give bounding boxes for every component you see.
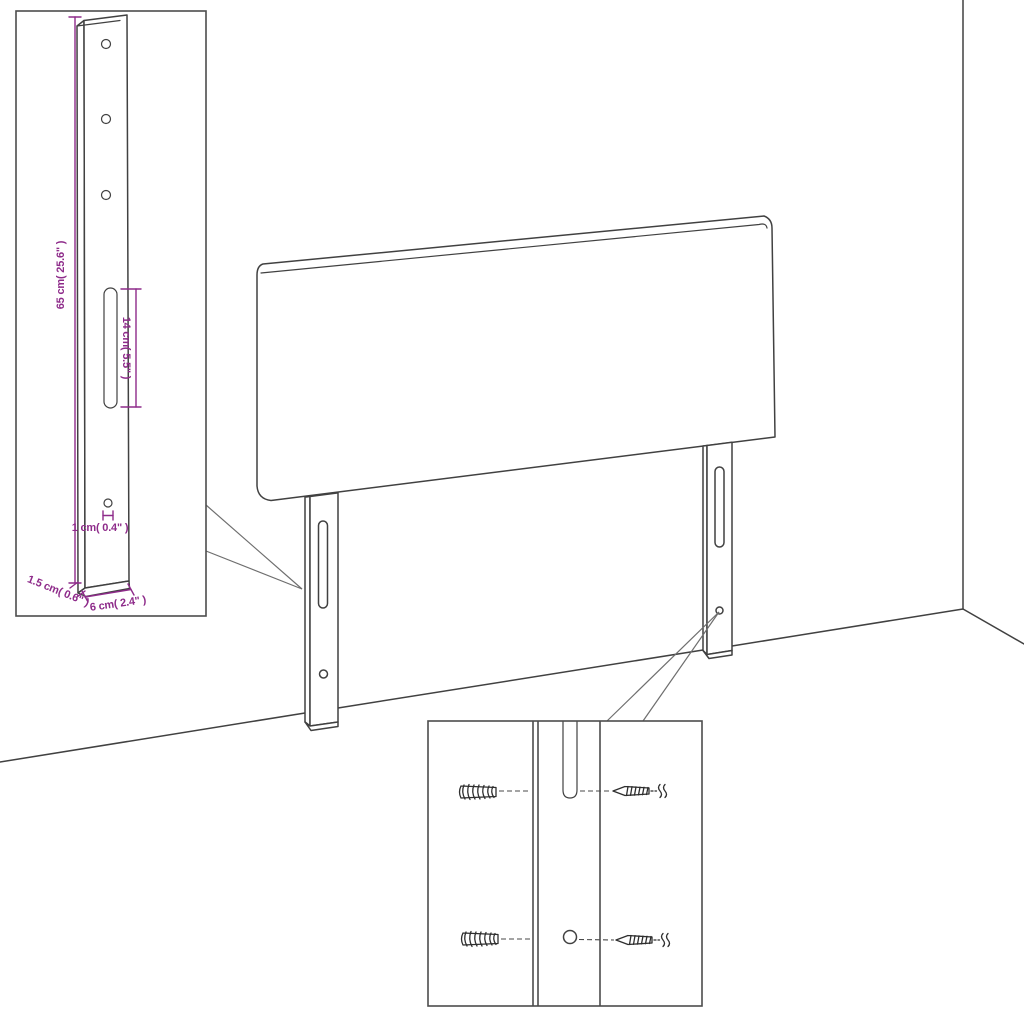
left-leg-front-face (310, 493, 338, 726)
right-leg-bracket (703, 442, 732, 658)
bracket-front-face (84, 15, 129, 588)
callout-line (206, 551, 302, 589)
bracket-detail-callout-lines (206, 505, 302, 589)
headboard-outline (257, 216, 775, 501)
diagram-canvas: 65 cm( 25.6" ) 14 cm( 5.5" ) 1 cm( 0.4" … (0, 0, 1024, 1024)
inset-box (428, 721, 702, 1006)
callout-line (643, 612, 719, 721)
bracket-detail-inset: 65 cm( 25.6" ) 14 cm( 5.5" ) 1 cm( 0.4" … (16, 11, 206, 616)
floor-line-middle-segment (338, 650, 703, 708)
callout-line (206, 505, 302, 589)
bracket-drawing (77, 15, 130, 597)
headboard (257, 216, 775, 501)
right-leg-front-face (707, 442, 732, 654)
floor-line-left-segment (0, 713, 305, 762)
dimension-hole-label: 1 cm( 0.4" ) (72, 522, 129, 534)
floor-line-right-wall (963, 609, 1024, 644)
dimension-height-label: 65 cm( 25.6" ) (55, 240, 67, 309)
left-leg-bracket (305, 493, 338, 731)
floor-line-right-segment (732, 609, 963, 646)
hardware-detail-callout-lines (607, 612, 719, 721)
dimension-slot-label: 14 cm( 5.5" ) (120, 317, 132, 380)
callout-line (607, 612, 719, 721)
hardware-detail-inset (428, 721, 702, 1006)
headboard-diagram: 65 cm( 25.6" ) 14 cm( 5.5" ) 1 cm( 0.4" … (0, 0, 1024, 1024)
